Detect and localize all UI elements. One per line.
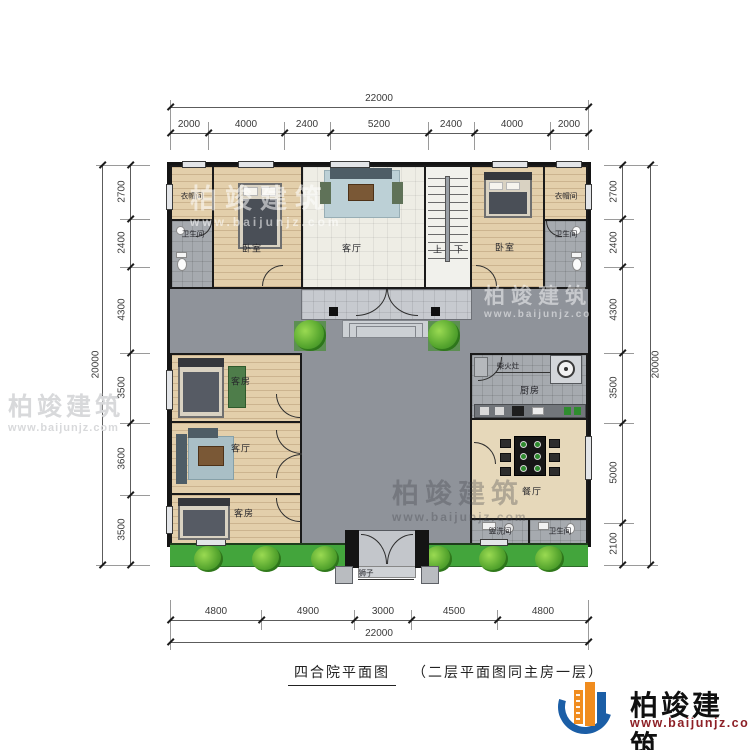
window-icon bbox=[556, 161, 582, 168]
room-label-bedroom-e: 卧室 bbox=[495, 241, 515, 254]
dim-bottom-seg: 4900 bbox=[288, 606, 328, 617]
window-icon bbox=[238, 161, 274, 168]
room-label-cloak-ne: 衣帽间 bbox=[555, 191, 578, 202]
dim-top-seg: 2400 bbox=[287, 119, 327, 130]
counter-plant-icon bbox=[564, 407, 571, 415]
room-label-bedroom-w: 卧室 bbox=[242, 242, 262, 255]
dim-right-seg: 4300 bbox=[609, 290, 620, 330]
window-icon bbox=[492, 161, 528, 168]
room-label-kitchen: 厨房 bbox=[520, 384, 540, 397]
lion-pedestal bbox=[421, 566, 439, 584]
dim-line bbox=[102, 165, 103, 565]
dim-right-seg: 2400 bbox=[609, 223, 620, 263]
stove-leader-line bbox=[495, 372, 550, 373]
dim-ext-line bbox=[284, 122, 285, 150]
window-icon bbox=[196, 539, 226, 546]
dim-line bbox=[170, 133, 588, 134]
cooktop-icon bbox=[480, 407, 489, 415]
chair-icon bbox=[500, 467, 511, 476]
dim-right-seg: 5000 bbox=[609, 453, 620, 493]
dim-top-seg: 2400 bbox=[431, 119, 471, 130]
plate-icon bbox=[534, 453, 541, 460]
room-label-living-w: 客厅 bbox=[231, 442, 251, 455]
bush-icon bbox=[194, 546, 223, 572]
dim-left-seg: 3500 bbox=[117, 368, 128, 408]
dim-ext-line bbox=[474, 122, 475, 150]
bed-pillow bbox=[261, 187, 276, 196]
dim-right-seg: 3500 bbox=[609, 368, 620, 408]
plate-icon bbox=[520, 441, 527, 448]
dim-top-seg: 2000 bbox=[169, 119, 209, 130]
dim-left-seg: 4300 bbox=[117, 290, 128, 330]
cooktop-icon bbox=[495, 407, 504, 415]
counter-plant-icon bbox=[574, 407, 581, 415]
window-icon bbox=[585, 436, 592, 480]
room-label-living-main: 客厅 bbox=[342, 242, 362, 255]
logo-building-icon bbox=[585, 682, 595, 726]
watermark-name: 柏竣建筑 bbox=[8, 393, 124, 421]
logo-building-icon bbox=[574, 690, 583, 724]
dim-left-total: 20000 bbox=[91, 335, 102, 395]
dim-left-seg: 2400 bbox=[117, 223, 128, 263]
brand-url: www.baijunjz.com bbox=[630, 716, 750, 730]
plate-icon bbox=[534, 441, 541, 448]
dim-right-seg: 2100 bbox=[609, 524, 620, 564]
gate-wall bbox=[415, 530, 429, 568]
watermark: 柏竣建筑 www.baijunjz.com bbox=[8, 392, 124, 435]
dim-left-seg: 3500 bbox=[117, 510, 128, 550]
plate-icon bbox=[534, 465, 541, 472]
lions-label: 狮子 bbox=[359, 568, 374, 579]
plate-icon bbox=[520, 465, 527, 472]
bed-headboard bbox=[178, 498, 230, 506]
dim-left-seg: 3600 bbox=[117, 439, 128, 479]
wood-stove-icon bbox=[564, 367, 568, 371]
dim-top-seg: 4000 bbox=[226, 119, 266, 130]
stove-label: 柴火灶 bbox=[497, 361, 520, 372]
bed-blanket bbox=[183, 372, 219, 412]
bed-pillow bbox=[243, 187, 258, 196]
planter-bush-icon bbox=[428, 320, 460, 351]
dim-ext-line bbox=[120, 495, 150, 496]
bed-blanket bbox=[183, 510, 225, 536]
dim-line bbox=[130, 165, 131, 565]
porch-column bbox=[431, 307, 440, 316]
bed-pillow bbox=[506, 182, 520, 190]
logo-building-icon bbox=[597, 692, 606, 724]
dim-bottom-total: 22000 bbox=[349, 628, 409, 639]
bed-headboard bbox=[484, 172, 532, 180]
dim-left-seg: 2700 bbox=[117, 172, 128, 212]
dim-line bbox=[170, 620, 588, 621]
stairs-down-label: 下 bbox=[454, 243, 464, 256]
planter-bush-icon bbox=[294, 320, 326, 351]
sofa-icon bbox=[330, 168, 392, 179]
dim-ext-line bbox=[96, 165, 150, 166]
stairs-up-label: 上 bbox=[433, 243, 443, 256]
stair-rail bbox=[445, 176, 450, 262]
armchair-icon bbox=[320, 182, 331, 204]
dim-top-seg: 2000 bbox=[549, 119, 589, 130]
chair-icon bbox=[549, 439, 560, 448]
window-icon bbox=[166, 506, 173, 534]
dim-bottom-seg: 4800 bbox=[196, 606, 236, 617]
window-icon bbox=[585, 184, 592, 210]
room-label-bath-se: 卫生间 bbox=[549, 526, 572, 537]
bed-headboard bbox=[178, 358, 224, 367]
brand-logo bbox=[556, 674, 622, 738]
dim-right-total: 20000 bbox=[651, 335, 662, 395]
room-label-guest-n: 客房 bbox=[231, 375, 251, 388]
coffee-table-icon bbox=[348, 184, 374, 201]
floorplan-canvas: 狮子 bbox=[0, 0, 750, 750]
room-label-cloak-nw: 衣帽间 bbox=[181, 191, 204, 202]
window-icon bbox=[182, 161, 206, 168]
dim-ext-line bbox=[120, 423, 150, 424]
bush-icon bbox=[535, 546, 564, 572]
dim-top-seg: 4000 bbox=[492, 119, 532, 130]
coffee-table-icon bbox=[198, 446, 224, 466]
dim-ext-line bbox=[428, 122, 429, 150]
dim-line bbox=[622, 165, 623, 565]
bush-icon bbox=[252, 546, 281, 572]
bed-blanket bbox=[489, 192, 527, 214]
window-icon bbox=[166, 370, 173, 410]
dim-ext-line bbox=[120, 353, 150, 354]
sofa-icon bbox=[188, 428, 218, 438]
stove-range-icon bbox=[512, 406, 524, 416]
chair-icon bbox=[500, 453, 511, 462]
watermark-url: www.baijunjz.com bbox=[8, 422, 124, 435]
dim-ext-line bbox=[96, 565, 150, 566]
dim-line bbox=[170, 107, 588, 108]
porch-column bbox=[329, 307, 338, 316]
dim-bottom-seg: 4500 bbox=[434, 606, 474, 617]
dim-line bbox=[170, 642, 588, 643]
lions-leader-line bbox=[358, 579, 414, 580]
gate-wall bbox=[345, 530, 359, 568]
dim-top-seg: 5200 bbox=[359, 119, 399, 130]
dim-bottom-seg: 3000 bbox=[363, 606, 403, 617]
toilet-icon bbox=[572, 258, 582, 271]
room-label-guest-s: 客房 bbox=[234, 507, 254, 520]
plate-icon bbox=[520, 453, 527, 460]
dim-ext-line bbox=[330, 122, 331, 150]
toilet-icon bbox=[177, 258, 187, 271]
dim-top-total: 22000 bbox=[349, 93, 409, 104]
sofa-icon bbox=[176, 434, 187, 484]
dim-bottom-seg: 4800 bbox=[523, 606, 563, 617]
dim-ext-line bbox=[120, 219, 150, 220]
armchair-icon bbox=[392, 182, 403, 204]
bed-blanket bbox=[243, 199, 277, 245]
entry-steps bbox=[356, 326, 416, 338]
dim-right-seg: 2700 bbox=[609, 172, 620, 212]
window-icon bbox=[330, 161, 370, 168]
lion-pedestal bbox=[335, 566, 353, 584]
dim-ext-line bbox=[120, 267, 150, 268]
bush-icon bbox=[479, 546, 508, 572]
chair-icon bbox=[500, 439, 511, 448]
chair-icon bbox=[549, 467, 560, 476]
sink-icon bbox=[532, 407, 544, 415]
room-label-dining: 餐厅 bbox=[522, 485, 542, 498]
caption-title: 四合院平面图 bbox=[288, 662, 396, 686]
room-label-bath-nw: 卫生间 bbox=[182, 229, 205, 240]
bed-pillow bbox=[489, 182, 503, 190]
window-icon bbox=[166, 184, 173, 210]
sink-icon bbox=[538, 522, 549, 530]
dining-table-icon bbox=[514, 436, 546, 476]
room-label-wash: 盥洗间 bbox=[489, 526, 512, 537]
chair-icon bbox=[549, 453, 560, 462]
room-label-bath-ne: 卫生间 bbox=[555, 229, 578, 240]
window-icon bbox=[480, 539, 508, 546]
